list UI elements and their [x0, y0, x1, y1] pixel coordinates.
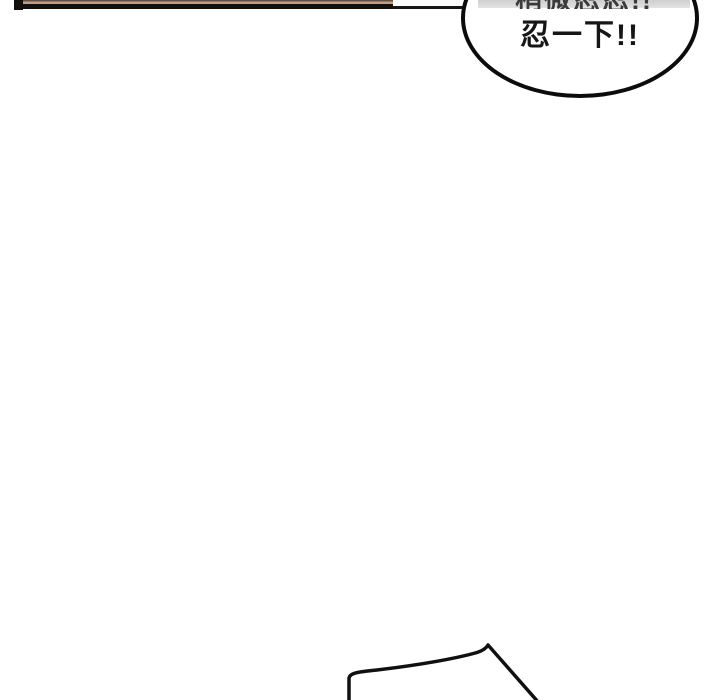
character-outline-artwork — [0, 0, 720, 700]
speech-bubble-clipped-text-label: 稍微忍忍!! — [515, 0, 653, 9]
speech-bubble-clipped-text: 稍微忍忍!! — [478, 0, 690, 9]
panel-edge-bar — [14, 0, 393, 9]
speech-bubble-text: 忍一下!! — [461, 10, 699, 54]
panel-edge-cap — [14, 0, 23, 10]
panel-edge-thin-line — [393, 6, 468, 9]
collar-outline-path — [349, 645, 539, 700]
comic-page: 稍微忍忍!! 忍一下!! — [0, 0, 720, 700]
